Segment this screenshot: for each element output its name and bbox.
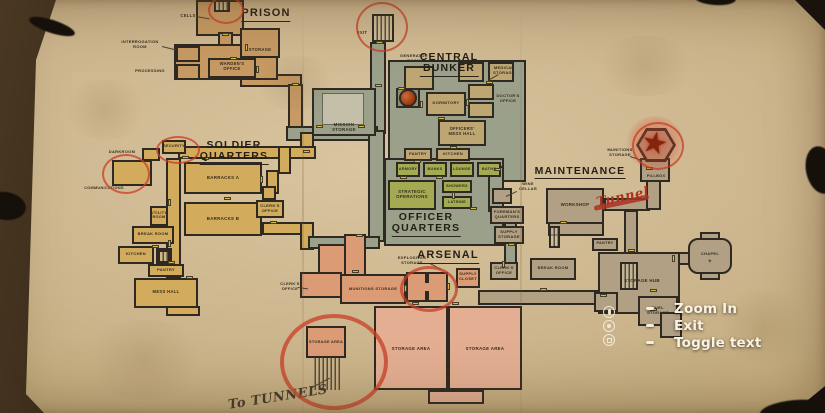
map-room <box>468 102 494 118</box>
door-marker <box>540 288 547 291</box>
door-marker <box>414 160 421 163</box>
objective-circle-marker <box>356 2 408 52</box>
room-label: EXPLOSIVES STORAGE <box>398 256 426 265</box>
door-marker <box>352 270 359 273</box>
room-label: STORAGE AREA <box>466 346 505 351</box>
door-marker <box>256 66 259 73</box>
room-label: CLERK'S OFFICE <box>494 266 514 275</box>
room-label: STRATEGIC OPERATIONS <box>396 189 428 199</box>
door-marker <box>436 176 443 179</box>
door-marker <box>452 302 459 305</box>
room-label: BREAK ROOM <box>538 266 569 271</box>
room-label: ARMORY <box>399 167 418 171</box>
room-label: MUNITIONS STORAGE <box>349 287 397 292</box>
paper-map: ★PRISONCENTRAL BUNKERSOLDIER QUARTERSOFF… <box>0 0 825 413</box>
room-label: BATHS <box>482 167 496 171</box>
door-marker <box>168 199 171 206</box>
room-label: UTILITY ROOM <box>151 211 167 220</box>
door-marker <box>222 33 229 36</box>
door-marker <box>292 83 299 86</box>
door-marker <box>260 176 263 183</box>
room-label: PROCESSING <box>135 69 165 74</box>
map-menu: Zoom In Exit Toggle text <box>646 301 761 350</box>
room-label: PANTRY <box>409 152 427 157</box>
room-label: MUNITIONS STORAGE <box>607 148 632 157</box>
door-marker <box>400 176 407 179</box>
menu-item-zoom-in[interactable]: Zoom In <box>646 301 761 316</box>
debris-shape <box>0 189 28 223</box>
room-label: PANTRY <box>157 268 175 273</box>
menu-item-label: Zoom In <box>674 301 737 317</box>
door-marker <box>628 249 635 252</box>
room-label: LOUNGE <box>453 167 471 171</box>
door-marker <box>650 289 657 292</box>
map-room <box>700 272 720 280</box>
room-label: STORAGE HUB <box>624 278 660 283</box>
mouse-button-icon <box>603 320 615 332</box>
door-marker <box>672 255 675 262</box>
room-label: STORAGE AREA <box>392 346 431 351</box>
door-marker <box>152 245 159 248</box>
door-marker <box>470 207 477 210</box>
door-marker <box>450 146 457 149</box>
objective-circle-marker <box>280 314 388 410</box>
key-hint-icon <box>603 334 615 346</box>
room-label: PANTRY <box>597 241 614 245</box>
zone-title: MAINTENANCE <box>535 166 626 179</box>
door-marker <box>358 125 365 128</box>
dash-bullet-icon <box>646 341 654 344</box>
door-marker <box>316 125 323 128</box>
map-room <box>166 306 200 316</box>
room-label: DOCTOR'S OFFICE <box>496 94 519 103</box>
room-label: SUPPLY CLOSET <box>459 272 477 281</box>
door-marker <box>356 234 363 237</box>
room-label: KITCHEN <box>443 152 463 157</box>
room-label: STORAGE <box>249 48 272 53</box>
objective-circle-marker <box>156 136 200 164</box>
room-label: BUNKS <box>427 167 442 171</box>
paper-crease <box>520 0 522 413</box>
stairs-hatch <box>549 226 560 248</box>
stairs-hatch <box>620 262 638 290</box>
map-room <box>492 188 512 204</box>
door-marker <box>560 221 567 224</box>
room-label: PILLBOX <box>647 174 666 178</box>
map-room <box>262 186 276 200</box>
door-marker <box>245 44 248 51</box>
room-label: WARDEN'S OFFICE <box>220 62 245 72</box>
door-marker <box>420 101 423 108</box>
map-room <box>700 232 720 240</box>
control-hints <box>603 306 615 346</box>
room-label: LATRINE <box>448 200 466 204</box>
room-label: MESS HALL <box>153 290 180 295</box>
room-label: DORMITORY <box>433 101 460 106</box>
objective-circle-marker <box>400 266 458 312</box>
objective-circle-marker <box>102 154 150 194</box>
room-label: MEDICAL STORAGE <box>493 66 515 75</box>
map-room <box>478 290 600 305</box>
door-marker <box>168 261 175 264</box>
room-label: BARRACKS B <box>207 216 240 221</box>
room-label: BARRACKS A <box>207 175 239 180</box>
map-layer: ★PRISONCENTRAL BUNKERSOLDIER QUARTERSOFF… <box>0 0 825 413</box>
room-label: SUPPLY STORAGE <box>498 230 520 239</box>
zone-title: CENTRAL BUNKER <box>420 52 479 77</box>
dash-bullet-icon <box>646 324 654 327</box>
room-label: + <box>708 259 712 266</box>
map-room <box>624 210 638 254</box>
map-room <box>468 84 494 100</box>
room-label: FOREMAN'S QUARTERS <box>494 210 521 219</box>
zone-title: SOLDIER QUARTERS <box>200 140 269 165</box>
game-map-screen: ★PRISONCENTRAL BUNKERSOLDIER QUARTERSOFF… <box>0 0 825 413</box>
paper-stain <box>60 80 150 140</box>
room-label: GENERATOR ROOM <box>400 54 428 63</box>
room-label: KITCHEN <box>126 252 146 257</box>
map-room <box>278 146 291 174</box>
map-room <box>368 130 385 242</box>
door-marker <box>486 81 493 84</box>
map-room <box>176 46 200 62</box>
door-marker <box>230 57 237 60</box>
door-marker <box>452 192 455 199</box>
door-marker <box>270 221 277 224</box>
room-label: BREAK ROOM <box>138 232 169 237</box>
menu-item-toggle-text[interactable]: Toggle text <box>646 335 761 350</box>
room-label: WINE CELLAR <box>519 182 537 191</box>
room-label: CHAPEL <box>701 252 719 257</box>
map-room <box>176 64 200 80</box>
menu-item-exit[interactable]: Exit <box>646 318 761 333</box>
door-marker <box>600 294 607 297</box>
room-label: CLERK'S OFFICE <box>280 282 300 291</box>
menu-item-label: Toggle text <box>674 335 761 351</box>
zone-title: ARSENAL <box>417 250 479 264</box>
room-label: OFFICERS' MESS HALL <box>449 127 476 137</box>
menu-item-label: Exit <box>674 318 704 334</box>
room-label: SHOWERS <box>446 184 468 188</box>
room-label: INTERROGATION ROOM <box>121 40 158 49</box>
door-marker <box>224 197 231 200</box>
map-room <box>428 390 484 404</box>
door-marker <box>303 150 310 153</box>
door-marker <box>508 243 515 246</box>
door-marker <box>375 84 382 87</box>
room-label: MISSION STORAGE <box>332 122 356 132</box>
map-room <box>300 272 342 298</box>
zone-title: OFFICER QUARTERS <box>392 212 461 237</box>
door-marker <box>438 117 445 120</box>
paper-stain <box>80 320 210 400</box>
map-room <box>240 28 280 58</box>
room-label: CLERK'S OFFICE <box>260 204 280 213</box>
door-marker <box>168 240 171 247</box>
mouse-wheel-icon <box>603 306 615 318</box>
zone-title: PRISON <box>241 8 290 22</box>
room-label: WORKSHOP <box>561 202 590 207</box>
door-marker <box>466 99 469 106</box>
boiler-marker <box>399 89 417 107</box>
door-marker <box>186 276 193 279</box>
room-label: CELLS <box>180 14 195 19</box>
paper-stain <box>590 36 700 96</box>
dash-bullet-icon <box>646 307 654 310</box>
